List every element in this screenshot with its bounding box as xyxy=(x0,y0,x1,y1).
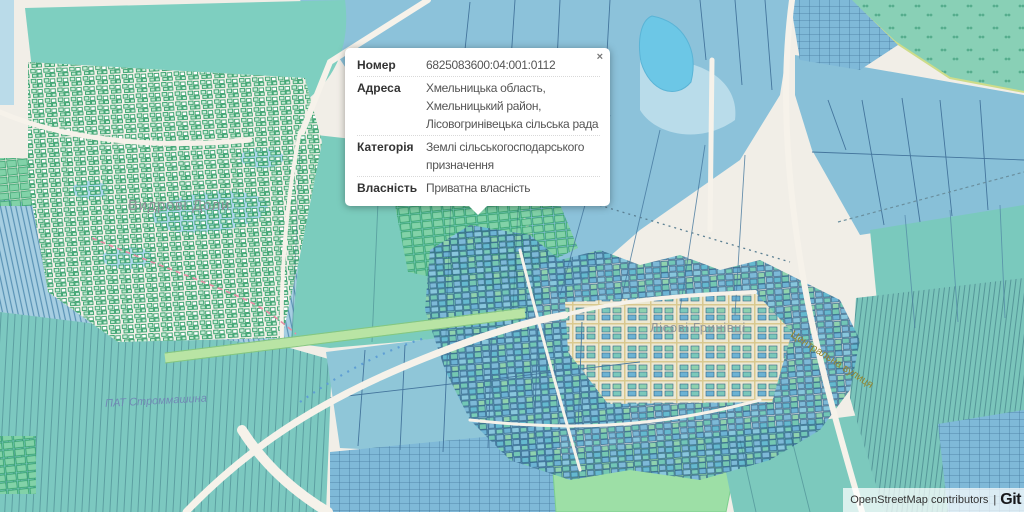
field-label: Категорія xyxy=(357,138,426,174)
field-value: Хмельницька область, Хмельницький район,… xyxy=(426,79,600,133)
label-settlement-central: Лісові Гринівці xyxy=(650,320,746,335)
field-value: Землі сільськогосподарського призначення xyxy=(426,138,600,174)
field-label: Власність xyxy=(357,179,426,197)
map-app: Видрові Доли ПАТ Строммашина Лісові Грин… xyxy=(0,0,1024,512)
field-value: Приватна власність xyxy=(426,179,600,197)
popup-row-address: Адреса Хмельницька область, Хмельницький… xyxy=(357,76,600,135)
label-settlement-west: Видрові Доли xyxy=(128,197,230,214)
field-value: 6825083600:04:001:0112 xyxy=(426,56,600,74)
osm-attribution-link[interactable]: OpenStreetMap contributors xyxy=(850,494,988,506)
parcel-info-popup: × Номер 6825083600:04:001:0112 Адреса Хм… xyxy=(345,48,610,206)
field-label: Адреса xyxy=(357,79,426,133)
attribution-separator: | xyxy=(993,494,996,506)
popup-row-ownership: Власність Приватна власність xyxy=(357,176,600,199)
attribution-bar: OpenStreetMap contributors | Git xyxy=(843,488,1024,512)
popup-row-category: Категорія Землі сільськогосподарського п… xyxy=(357,135,600,176)
github-logo[interactable]: Git xyxy=(1000,491,1021,509)
popup-row-number: Номер 6825083600:04:001:0112 xyxy=(357,54,600,76)
close-icon[interactable]: × xyxy=(597,51,603,63)
field-label: Номер xyxy=(357,56,426,74)
